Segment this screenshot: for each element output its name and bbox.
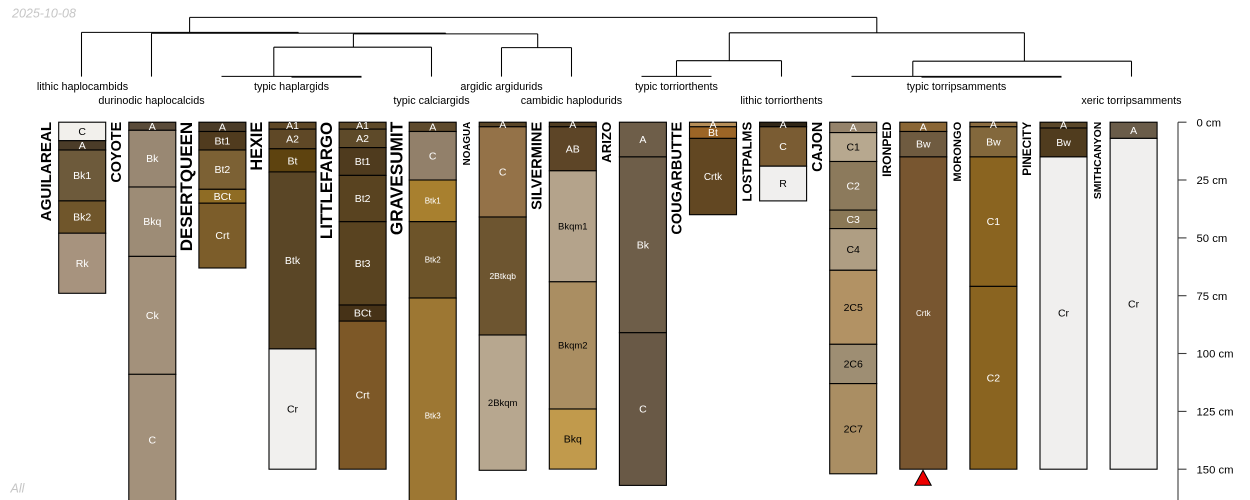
svg-text:0 cm: 0 cm (1197, 117, 1221, 129)
svg-text:CAJON: CAJON (810, 122, 826, 172)
svg-text:AB: AB (566, 143, 580, 155)
svg-text:25 cm: 25 cm (1197, 175, 1228, 187)
svg-text:C1: C1 (846, 142, 860, 154)
svg-text:A: A (780, 119, 787, 131)
svg-text:Bkq: Bkq (143, 216, 161, 228)
svg-text:Bk1: Bk1 (73, 170, 91, 182)
svg-text:Cr: Cr (287, 404, 299, 416)
svg-text:50 cm: 50 cm (1197, 233, 1228, 245)
svg-text:C2: C2 (987, 372, 1001, 384)
svg-text:100 cm: 100 cm (1197, 349, 1234, 361)
svg-text:Crtk: Crtk (704, 172, 723, 183)
svg-text:75 cm: 75 cm (1197, 291, 1228, 303)
svg-text:AGUILAREAL: AGUILAREAL (38, 122, 55, 222)
svg-text:BCt: BCt (214, 191, 232, 203)
svg-text:Bw: Bw (986, 136, 1001, 148)
svg-text:Bk: Bk (146, 153, 159, 165)
svg-text:COYOTE: COYOTE (109, 121, 125, 182)
svg-text:Crtk: Crtk (916, 309, 932, 318)
svg-text:typic haplargids: typic haplargids (254, 81, 330, 93)
svg-text:argidic argidurids: argidic argidurids (460, 81, 543, 93)
svg-text:Bw: Bw (1056, 137, 1071, 149)
svg-text:Bt2: Bt2 (215, 164, 231, 176)
svg-text:2025-10-08: 2025-10-08 (11, 7, 76, 21)
svg-text:xeric torripsamments: xeric torripsamments (1081, 95, 1182, 107)
svg-text:MORONGO: MORONGO (952, 121, 964, 181)
svg-text:2C5: 2C5 (844, 302, 863, 314)
svg-text:C4: C4 (846, 244, 860, 256)
svg-text:Rk: Rk (76, 258, 90, 270)
svg-text:Bt: Bt (288, 155, 298, 167)
svg-text:C: C (149, 435, 157, 447)
svg-text:A: A (850, 122, 857, 134)
svg-text:Crt: Crt (215, 230, 229, 242)
svg-text:A: A (429, 121, 436, 133)
svg-text:Bk: Bk (637, 239, 650, 251)
svg-text:C1: C1 (987, 216, 1001, 228)
svg-text:A: A (920, 121, 927, 133)
svg-text:Btk3: Btk3 (425, 412, 442, 421)
svg-text:A: A (219, 121, 226, 133)
svg-text:typic torriorthents: typic torriorthents (635, 81, 718, 93)
svg-text:C: C (779, 141, 787, 153)
svg-text:NOAGUA: NOAGUA (462, 122, 473, 166)
svg-text:A: A (990, 119, 997, 131)
svg-text:lithic haplocambids: lithic haplocambids (37, 81, 129, 93)
svg-text:COUGARBUTTE: COUGARBUTTE (670, 121, 686, 234)
svg-text:Cr: Cr (1058, 308, 1070, 320)
svg-text:LITTLEFARGO: LITTLEFARGO (317, 122, 336, 239)
svg-text:Btk: Btk (285, 255, 301, 267)
svg-text:BCt: BCt (354, 308, 372, 320)
svg-text:A: A (79, 140, 86, 152)
svg-text:typic torripsamments: typic torripsamments (907, 81, 1007, 93)
svg-text:ARIZO: ARIZO (599, 122, 614, 163)
svg-text:Bt: Bt (708, 127, 718, 139)
svg-text:2C7: 2C7 (844, 423, 863, 435)
svg-text:A2: A2 (286, 134, 299, 146)
svg-text:A1: A1 (356, 120, 369, 132)
svg-text:Bt2: Bt2 (355, 193, 371, 205)
svg-text:LOSTPALMS: LOSTPALMS (739, 122, 754, 202)
svg-text:150 cm: 150 cm (1197, 464, 1234, 476)
svg-text:Bt3: Bt3 (355, 258, 371, 270)
svg-text:PINECITY: PINECITY (1021, 122, 1034, 176)
svg-text:C: C (78, 126, 86, 138)
svg-text:2Bkqm: 2Bkqm (488, 398, 518, 409)
svg-text:SILVERMINE: SILVERMINE (530, 122, 546, 210)
svg-text:Btk1: Btk1 (425, 197, 442, 206)
svg-text:durinodic haplocalcids: durinodic haplocalcids (98, 95, 205, 107)
svg-text:C: C (429, 150, 437, 162)
svg-text:C: C (499, 167, 507, 179)
svg-text:SMITHCANYON: SMITHCANYON (1093, 122, 1104, 199)
svg-text:typic calciargids: typic calciargids (393, 95, 470, 107)
svg-text:HEXIE: HEXIE (248, 122, 266, 171)
svg-text:A: A (149, 121, 156, 133)
svg-text:Bt1: Bt1 (215, 135, 231, 147)
svg-text:Bk2: Bk2 (73, 212, 91, 224)
svg-text:125 cm: 125 cm (1197, 407, 1234, 419)
svg-text:C: C (639, 404, 647, 416)
svg-text:Bkqm1: Bkqm1 (558, 222, 588, 233)
svg-text:Bkq: Bkq (564, 434, 582, 446)
svg-text:Bkqm2: Bkqm2 (558, 341, 588, 352)
svg-text:A2: A2 (356, 133, 369, 145)
svg-text:Bt1: Bt1 (355, 156, 371, 168)
svg-text:Ck: Ck (146, 310, 160, 322)
svg-text:2C6: 2C6 (844, 359, 863, 371)
svg-text:Crt: Crt (356, 390, 370, 402)
svg-text:A: A (1060, 120, 1067, 132)
svg-text:A: A (1130, 125, 1137, 137)
svg-text:GRAVESUMIT: GRAVESUMIT (386, 121, 406, 235)
svg-text:DESERTQUEEN: DESERTQUEEN (177, 122, 196, 251)
svg-text:C2: C2 (846, 180, 860, 192)
svg-text:2Btkqb: 2Btkqb (489, 271, 516, 281)
svg-text:Bw: Bw (916, 139, 931, 151)
svg-text:IRONPED: IRONPED (880, 122, 894, 177)
svg-text:A: A (499, 119, 506, 131)
svg-text:R: R (779, 178, 787, 190)
svg-text:lithic torriorthents: lithic torriorthents (740, 95, 823, 107)
svg-text:cambidic haplodurids: cambidic haplodurids (521, 95, 623, 107)
svg-text:Btk2: Btk2 (425, 256, 442, 265)
svg-text:C3: C3 (846, 214, 860, 226)
svg-text:A1: A1 (286, 120, 299, 132)
svg-text:A: A (639, 134, 646, 146)
svg-text:A: A (569, 119, 576, 131)
svg-text:All: All (10, 482, 26, 496)
svg-text:Cr: Cr (1128, 298, 1140, 310)
